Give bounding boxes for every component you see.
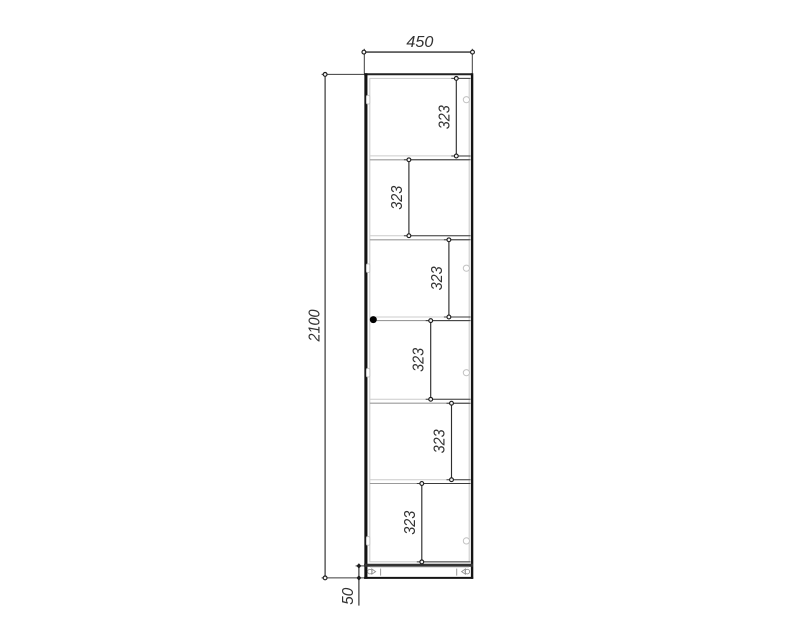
svg-text:323: 323 [411, 348, 428, 372]
svg-text:323: 323 [429, 266, 446, 290]
svg-text:50: 50 [340, 588, 357, 605]
svg-text:323: 323 [402, 511, 419, 535]
svg-text:323: 323 [436, 105, 453, 129]
svg-text:323: 323 [389, 186, 406, 210]
svg-text:450: 450 [406, 34, 433, 51]
svg-text:323: 323 [432, 429, 449, 453]
svg-text:2100: 2100 [307, 309, 324, 342]
